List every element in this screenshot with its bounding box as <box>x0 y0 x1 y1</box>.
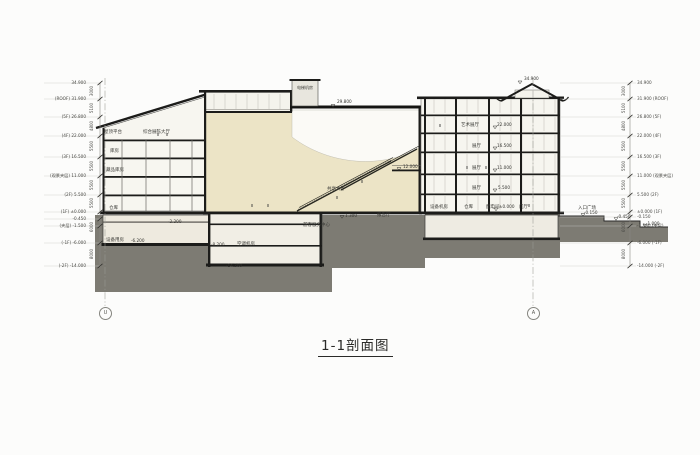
level-label: (ROOF) 31.900 <box>14 97 86 101</box>
elev-marker: -6.200 <box>131 239 145 243</box>
level-label: 11.000 (观景夹层) <box>637 174 673 178</box>
level-label: 31.900 (ROOF) <box>637 97 668 101</box>
dim-label: 5100 <box>90 103 94 113</box>
level-label: 26.800 (5F) <box>637 115 661 119</box>
dim-label: 3000 <box>622 86 626 96</box>
room-label: 库房 <box>110 150 119 155</box>
elev-marker: 16.500 <box>497 144 512 148</box>
elev-marker: 1.300 <box>345 214 357 218</box>
room-label: 展厅 <box>472 145 481 150</box>
room-label: 电梯机房 <box>293 86 317 90</box>
level-label: (-1F) -6.000 <box>14 241 86 245</box>
dim-label: 8000 <box>90 249 94 259</box>
room-label: 藏品库房 <box>106 169 124 174</box>
level-label: 34.900 <box>637 81 652 85</box>
room-label: 综合展陈大厅 <box>143 131 170 136</box>
level-label: 5.500 (2F) <box>637 193 659 197</box>
drawing-title: 1-1剖面图 <box>318 334 393 357</box>
grid-bubble-a: A <box>527 307 540 320</box>
room-label: 空调机房 <box>237 243 255 248</box>
room-label: 展厅 <box>472 167 481 172</box>
level-label: -6.000 (-1F) <box>637 241 662 245</box>
level-label: (1F) ±0.000 <box>14 210 86 214</box>
room-label: 配电间 <box>486 206 500 211</box>
room-label: 门厅 <box>519 206 528 211</box>
dim-label: 5500 <box>90 198 94 208</box>
atrium-east-wall <box>419 108 421 212</box>
dim-label: 5500 <box>622 180 626 190</box>
section-linework <box>0 0 700 455</box>
dim-label: 5500 <box>90 161 94 171</box>
elev-marker: ±0.000 <box>499 205 515 209</box>
elev-marker: 12.000 <box>403 165 418 169</box>
level-label: -0.450 <box>14 217 86 221</box>
basement-pit <box>206 212 324 267</box>
elev-marker: -8.200 <box>211 243 225 247</box>
basement-right <box>423 215 560 240</box>
dim-label: 8000 <box>622 249 626 259</box>
elev-marker: -14.200 <box>226 264 242 268</box>
level-label: (2F) 5.500 <box>14 193 86 197</box>
level-label: (夹层) -1.500 <box>14 224 86 228</box>
room-label: 仓库 <box>109 207 118 212</box>
room-label: 展厅 <box>472 187 481 192</box>
level-label: (5F) 26.800 <box>14 115 86 119</box>
elev-marker: -0.450 <box>617 215 631 219</box>
level-label: (-2F) -14.000 <box>14 264 86 268</box>
level-label: 16.500 (3F) <box>637 155 661 159</box>
dim-label: 3000 <box>90 86 94 96</box>
room-label: 设备用房 <box>106 239 124 244</box>
elev-marker: 22.000 <box>497 123 512 127</box>
level-label: (4F) 22.000 <box>14 134 86 138</box>
level-label: 22.000 (4F) <box>637 134 661 138</box>
room-label: 报告厅 <box>377 214 391 219</box>
room-label: 共享大厅 <box>327 188 345 193</box>
room-label: 艺术展厅 <box>461 124 479 129</box>
room-label: 游客服务中心 <box>303 224 330 229</box>
dim-label: 5500 <box>622 141 626 151</box>
room-label: 屋顶平台 <box>104 131 122 136</box>
level-label: (观景夹层) 11.000 <box>14 174 86 178</box>
section-drawing-sheet: 34.900 (ROOF) 31.900 (5F) 26.800 (4F) 22… <box>0 0 700 455</box>
right-block <box>417 97 564 215</box>
room-label: 设备机房 <box>430 206 448 211</box>
rooftop-machine-room <box>290 79 321 106</box>
dim-label: 5500 <box>622 161 626 171</box>
elev-marker: 29.800 <box>337 100 352 104</box>
dim-label: 6000 <box>622 222 626 232</box>
elev-marker: -0.150 <box>584 211 598 215</box>
room-label: 仓库 <box>464 206 473 211</box>
dim-label: 5100 <box>622 103 626 113</box>
level-label: 34.900 <box>14 81 86 85</box>
dim-label: 5500 <box>622 198 626 208</box>
level-label: -14.000 (-2F) <box>637 264 664 268</box>
dim-label: 4800 <box>622 121 626 131</box>
elev-marker: 5.500 <box>498 186 510 190</box>
dim-label: 5500 <box>90 180 94 190</box>
level-label: (3F) 16.500 <box>14 155 86 159</box>
dim-label: 6000 <box>90 222 94 232</box>
dim-label: 4800 <box>90 121 94 131</box>
level-label: -0.150 <box>637 215 651 219</box>
elev-marker: -1.000 <box>646 222 660 226</box>
elev-marker: 11.000 <box>497 166 512 170</box>
elev-marker: 34.900 <box>524 77 539 81</box>
elev-marker: -2.200 <box>168 220 182 224</box>
dim-label: 5500 <box>90 141 94 151</box>
grid-bubble-u: U <box>99 307 112 320</box>
